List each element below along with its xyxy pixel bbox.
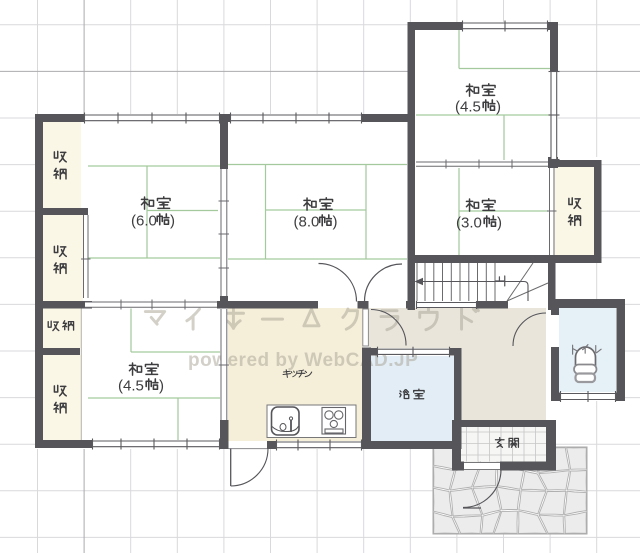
svg-text:): ) — [170, 213, 175, 230]
svg-text:): ) — [497, 215, 502, 232]
svg-text:): ) — [496, 99, 501, 116]
svg-text:): ) — [159, 378, 164, 395]
svg-text:(4.5: (4.5 — [455, 99, 481, 116]
svg-text:(6.0: (6.0 — [131, 213, 157, 230]
svg-text:(8.0: (8.0 — [294, 214, 320, 231]
svg-text:(4.5: (4.5 — [118, 378, 144, 395]
svg-text:): ) — [333, 214, 338, 231]
svg-text:(3.0: (3.0 — [456, 215, 482, 232]
